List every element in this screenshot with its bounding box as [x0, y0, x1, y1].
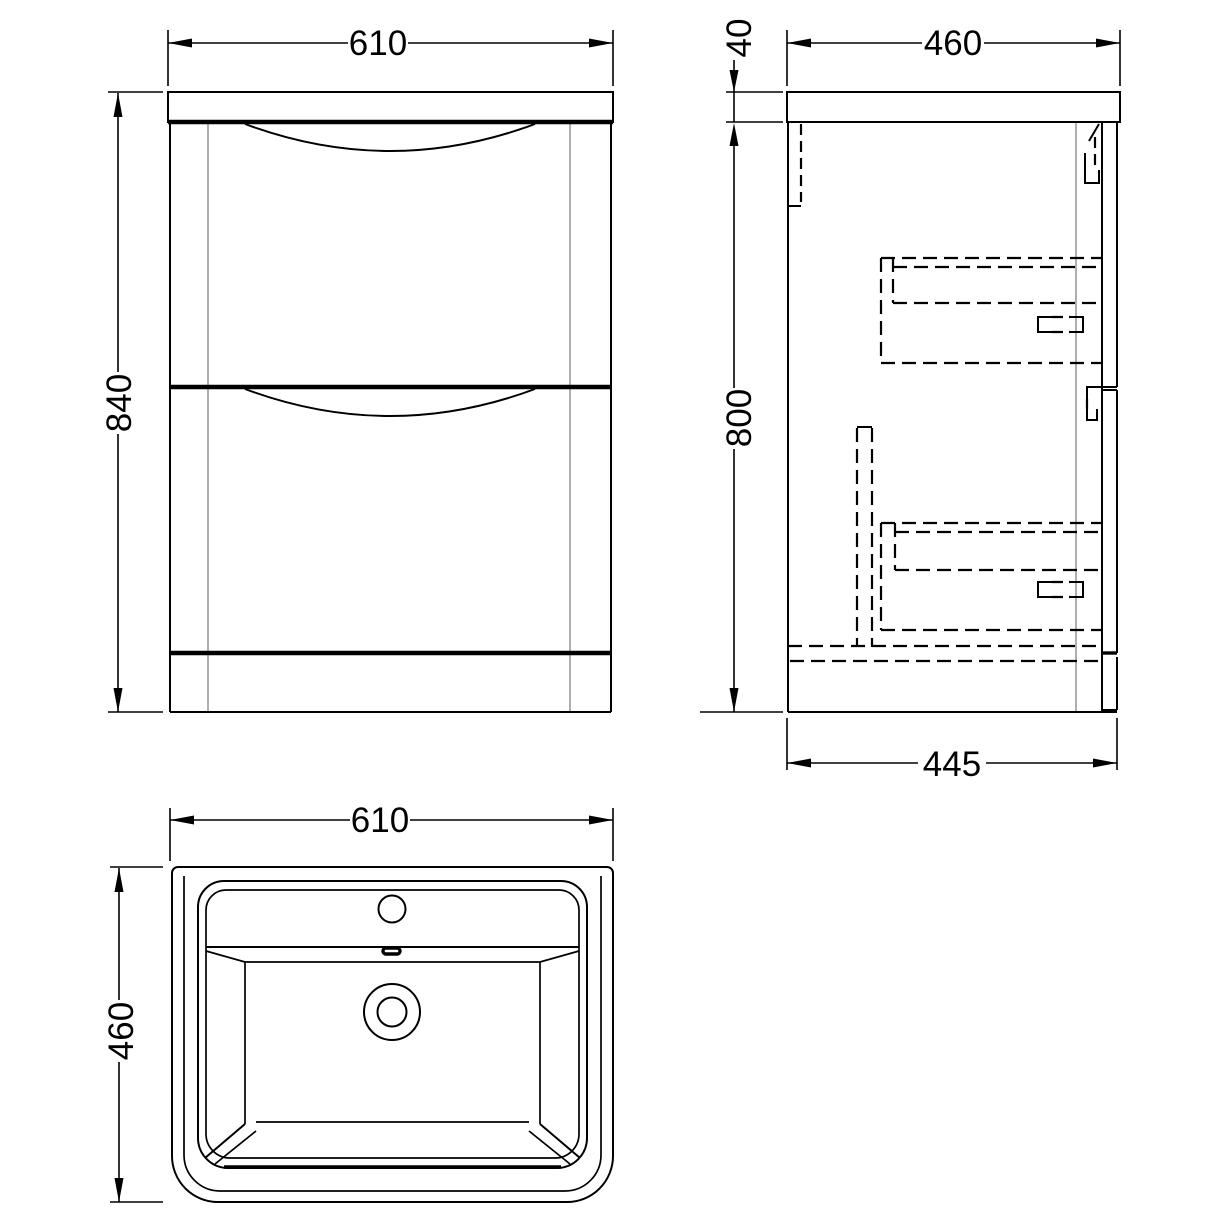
- side-base-depth-dimension-label: 445: [923, 745, 981, 784]
- plan-basin-bowl: [205, 962, 580, 1164]
- front-height-dimension-label: 840: [100, 374, 139, 432]
- plan-width-dimension: 610: [170, 801, 613, 861]
- plan-drain: [364, 984, 420, 1040]
- plan-depth-dimension: 460: [102, 867, 163, 1202]
- plan-tap-hole: [379, 896, 406, 923]
- front-drawer2-handle-curve: [245, 389, 535, 416]
- side-depth-dimension-label: 460: [924, 24, 982, 63]
- technical-drawing-page: 610 840: [0, 0, 1224, 1224]
- side-worktop-thickness-dimension: 40: [720, 19, 783, 146]
- plan-basin-outer-edge: [172, 867, 613, 1202]
- side-view: 40 460 800 445: [700, 19, 1120, 784]
- side-depth-dimension: 460: [787, 24, 1120, 86]
- front-drawer1-handle-curve: [245, 124, 535, 151]
- side-worktop: [787, 92, 1120, 122]
- side-worktop-thickness-label: 40: [720, 19, 759, 58]
- side-runner-clip-top: [1085, 124, 1099, 183]
- plan-basin-rim-inner: [206, 890, 579, 1158]
- side-upper-drawer-box: [881, 258, 1102, 363]
- side-plinth-hidden-lines: [788, 646, 1102, 661]
- front-width-dimension-label: 610: [349, 24, 407, 63]
- side-back-rail-detail: [788, 124, 801, 206]
- plan-depth-dimension-label: 460: [102, 1002, 141, 1060]
- side-height-dimension: 800: [700, 146, 783, 712]
- side-base-depth-dimension: 445: [787, 718, 1117, 784]
- plan-basin-rim-outer: [198, 881, 587, 1168]
- plan-view: 610 460: [102, 801, 613, 1202]
- side-height-dimension-label: 800: [720, 389, 759, 447]
- side-lower-drawer-back-panel: [857, 427, 872, 647]
- side-drawer-fronts: [1102, 123, 1117, 710]
- side-lower-drawer-box: [881, 523, 1102, 630]
- front-height-dimension: 840: [100, 92, 163, 712]
- side-runner-clip-mid: [1087, 387, 1102, 420]
- front-view: 610 840: [100, 24, 613, 712]
- front-worktop: [168, 92, 613, 122]
- vanity-technical-drawing: 610 840: [0, 0, 1224, 1224]
- plan-width-dimension-label: 610: [351, 801, 409, 840]
- front-width-dimension: 610: [168, 24, 613, 86]
- plan-overflow-slot: [383, 948, 400, 954]
